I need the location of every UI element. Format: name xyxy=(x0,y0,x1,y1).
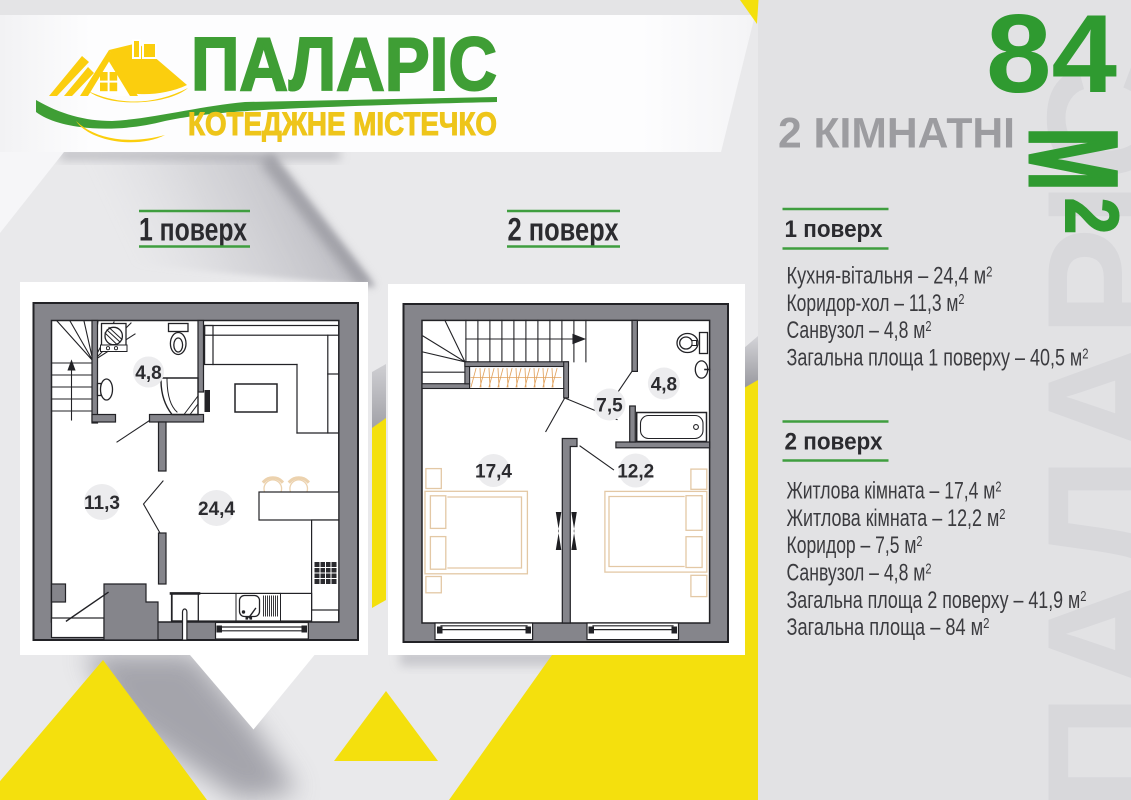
svg-text:84: 84 xyxy=(986,0,1117,116)
svg-text:Житлова кімната – 12,2 м2: Житлова кімната – 12,2 м2 xyxy=(787,505,1006,532)
svg-text:Загальна площа 1 поверху – 40,: Загальна площа 1 поверху – 40,5 м2 xyxy=(787,344,1089,371)
svg-text:4,8: 4,8 xyxy=(135,363,161,384)
svg-text:24,4: 24,4 xyxy=(198,499,235,520)
svg-text:Житлова кімната – 17,4 м2: Житлова кімната – 17,4 м2 xyxy=(787,478,1002,505)
svg-text:КОТЕДЖНЕ МІСТЕЧКО: КОТЕДЖНЕ МІСТЕЧКО xyxy=(188,106,497,142)
svg-text:Коридор-хол – 11,3 м2: Коридор-хол – 11,3 м2 xyxy=(787,290,965,317)
svg-text:Кухня-вітальня – 24,4 м2: Кухня-вітальня – 24,4 м2 xyxy=(787,263,993,290)
svg-text:12,2: 12,2 xyxy=(617,462,654,483)
svg-text:1 поверх: 1 поверх xyxy=(785,216,884,243)
svg-text:2 КІМНАТНІ: 2 КІМНАТНІ xyxy=(778,110,1015,158)
svg-text:Коридор – 7,5 м2: Коридор – 7,5 м2 xyxy=(787,532,923,559)
svg-text:Загальна площа 2 поверху – 41,: Загальна площа 2 поверху – 41,9 м2 xyxy=(787,587,1087,614)
svg-text:Загальна площа – 84 м2: Загальна площа – 84 м2 xyxy=(787,614,990,641)
svg-text:М: М xyxy=(1003,127,1131,191)
svg-text:2 поверх: 2 поверх xyxy=(785,429,884,456)
svg-text:11,3: 11,3 xyxy=(84,493,120,514)
svg-text:17,4: 17,4 xyxy=(475,462,512,483)
svg-text:4,8: 4,8 xyxy=(651,375,677,396)
svg-text:2 поверх: 2 поверх xyxy=(508,212,619,248)
svg-text:Санвузол – 4,8 м2: Санвузол – 4,8 м2 xyxy=(787,560,932,587)
svg-text:2: 2 xyxy=(1050,198,1131,234)
svg-text:ПАЛАРІС: ПАЛАРІС xyxy=(191,22,497,106)
svg-text:7,5: 7,5 xyxy=(596,396,623,417)
svg-text:1 поверх: 1 поверх xyxy=(139,212,247,248)
svg-text:Санвузол – 4,8 м2: Санвузол – 4,8 м2 xyxy=(787,317,932,344)
